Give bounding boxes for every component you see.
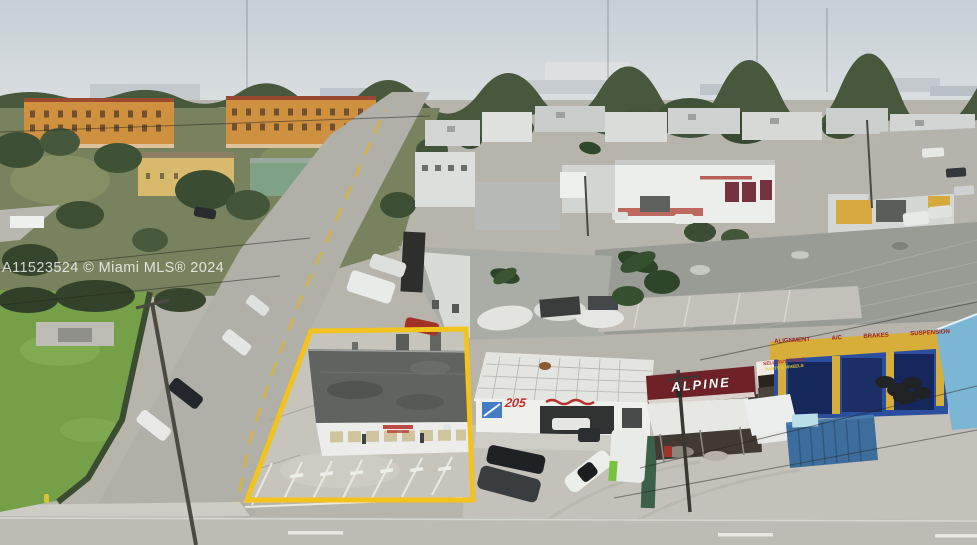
facade-sign	[383, 425, 413, 429]
car	[954, 185, 975, 195]
car	[922, 147, 945, 158]
work-van	[608, 429, 648, 483]
semi-truck	[10, 216, 44, 228]
roof-205	[474, 352, 654, 404]
car	[612, 212, 628, 220]
white-building-maroon-doors	[615, 160, 775, 223]
fire-hydrant	[44, 494, 49, 503]
car	[946, 167, 967, 177]
van	[902, 211, 929, 227]
car	[674, 214, 694, 224]
roof-hvac	[396, 334, 409, 351]
aerial-photo: A11523524 © Miami MLS® 2024 205 ALPINE S…	[0, 0, 977, 545]
alpine-shop	[646, 366, 762, 462]
rooftop-object	[539, 362, 551, 370]
photo-scene	[0, 0, 977, 545]
van	[927, 205, 952, 219]
car	[578, 428, 600, 442]
